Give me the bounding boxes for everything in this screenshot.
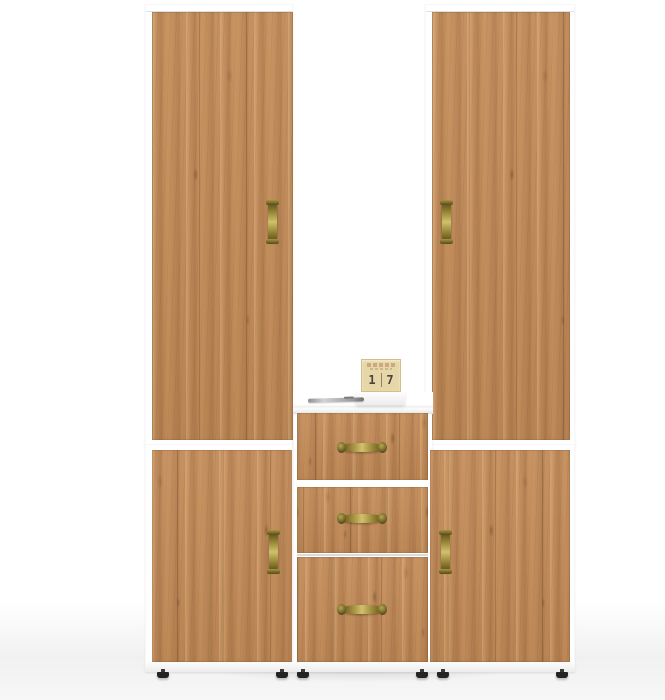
drawer-front-3: [297, 557, 428, 662]
cabinet-foot: [416, 672, 428, 678]
right-tall-door-handle: [442, 202, 451, 242]
plinth-base: [145, 662, 575, 672]
calendar-digit-divider: [381, 373, 382, 387]
calendar-month-text: [367, 363, 395, 367]
right-base-cabinet-door: [430, 450, 570, 662]
right-base-door-handle: [441, 532, 450, 572]
drawer-2-handle: [340, 514, 384, 523]
left-base-door-handle: [269, 532, 278, 572]
drawer-seam-line: [297, 554, 428, 556]
cabinet-foot: [437, 672, 449, 678]
right-tall-cabinet-door: [432, 12, 570, 440]
desk-calendar-cube: 1 7: [361, 359, 401, 392]
left-base-cabinet-door: [152, 450, 292, 662]
furniture-product-photo: 1 7: [0, 0, 665, 700]
drawer-front-2: [297, 487, 428, 553]
drawer-1-handle: [340, 443, 384, 452]
calendar-digit-left: 1: [365, 373, 380, 387]
calendar-digit-right: 7: [383, 373, 398, 387]
calendar-subtext: [370, 368, 392, 370]
cabinet-foot: [276, 672, 288, 678]
cabinet-foot: [556, 672, 568, 678]
drawer-front-1: [297, 413, 428, 480]
left-tall-cabinet-door: [152, 12, 293, 440]
left-tall-door-handle: [268, 202, 277, 242]
drawer-3-handle: [340, 605, 384, 614]
cabinet-foot: [297, 672, 309, 678]
cabinet-foot: [157, 672, 169, 678]
calendar-digits: 1 7: [362, 371, 400, 389]
